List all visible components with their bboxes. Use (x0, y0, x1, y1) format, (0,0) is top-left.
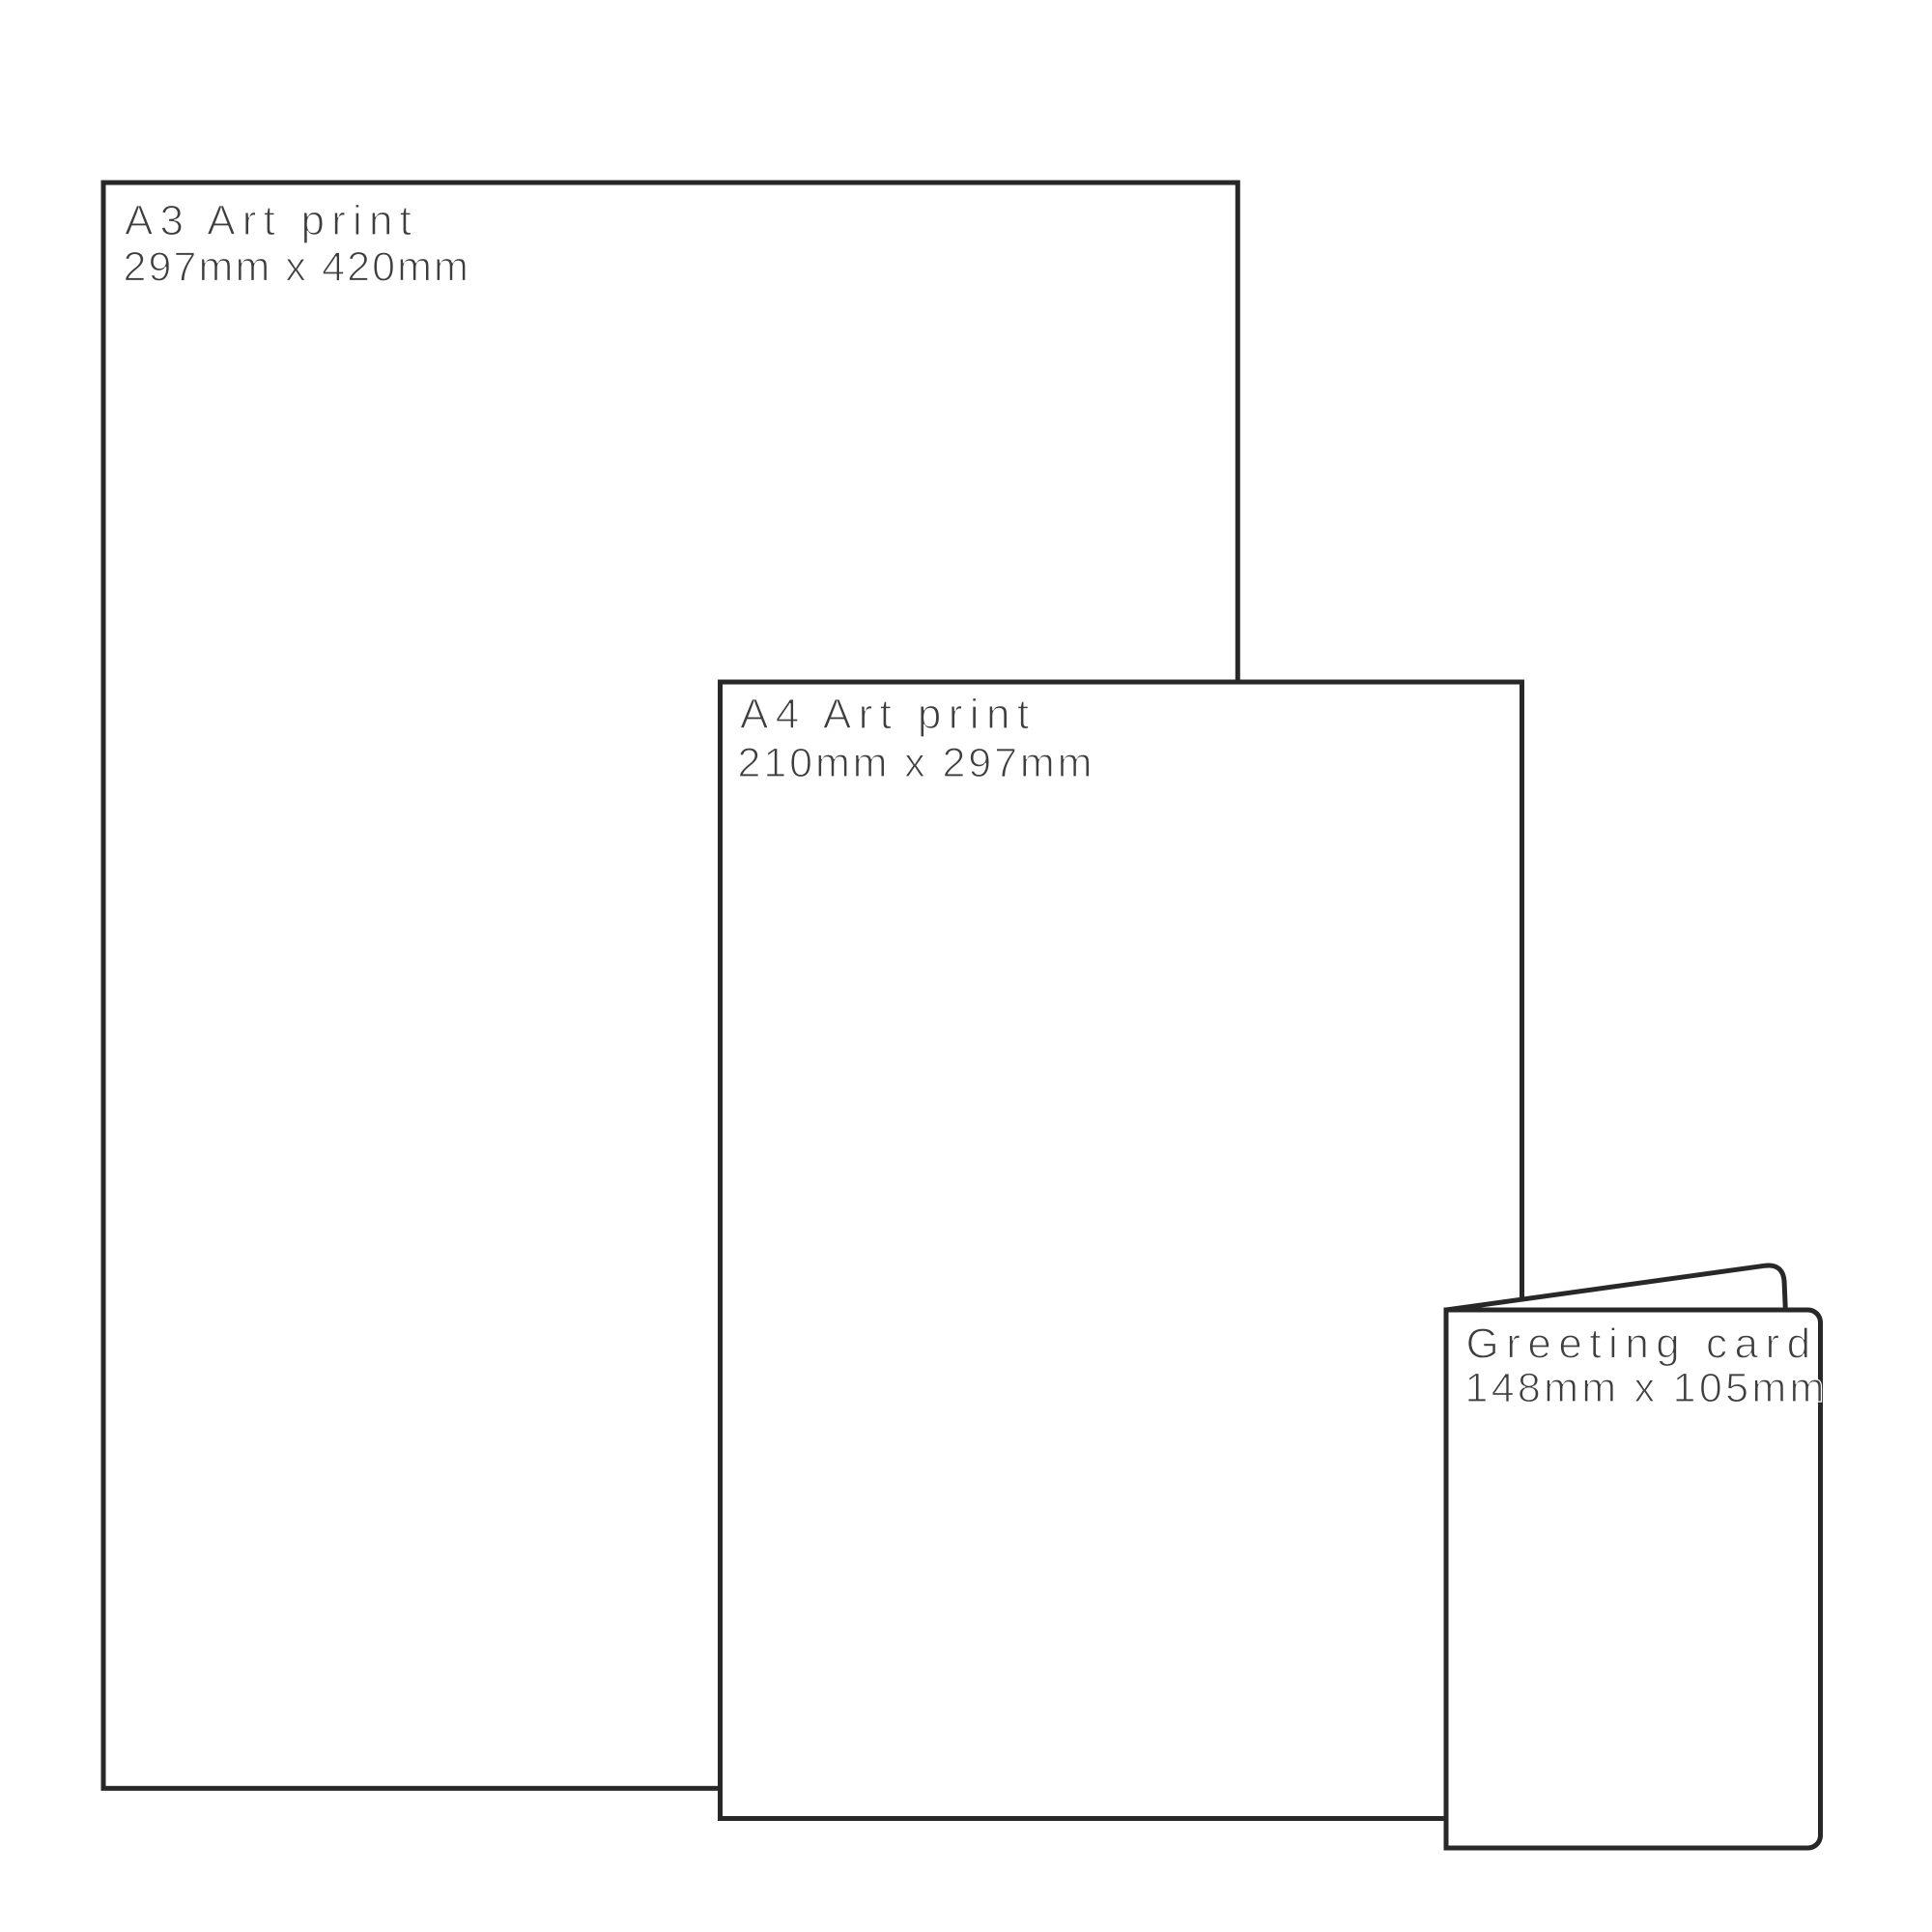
svg-text:A4 Art print: A4 Art print (740, 691, 1036, 738)
svg-text:210mm x 297mm: 210mm x 297mm (738, 740, 1095, 786)
svg-text:Greeting card: Greeting card (1466, 1321, 1818, 1368)
svg-text:297mm x 420mm: 297mm x 420mm (124, 244, 470, 291)
svg-text:A3 Art print: A3 Art print (125, 197, 418, 244)
svg-text:148mm x 105mm: 148mm x 105mm (1465, 1365, 1828, 1411)
